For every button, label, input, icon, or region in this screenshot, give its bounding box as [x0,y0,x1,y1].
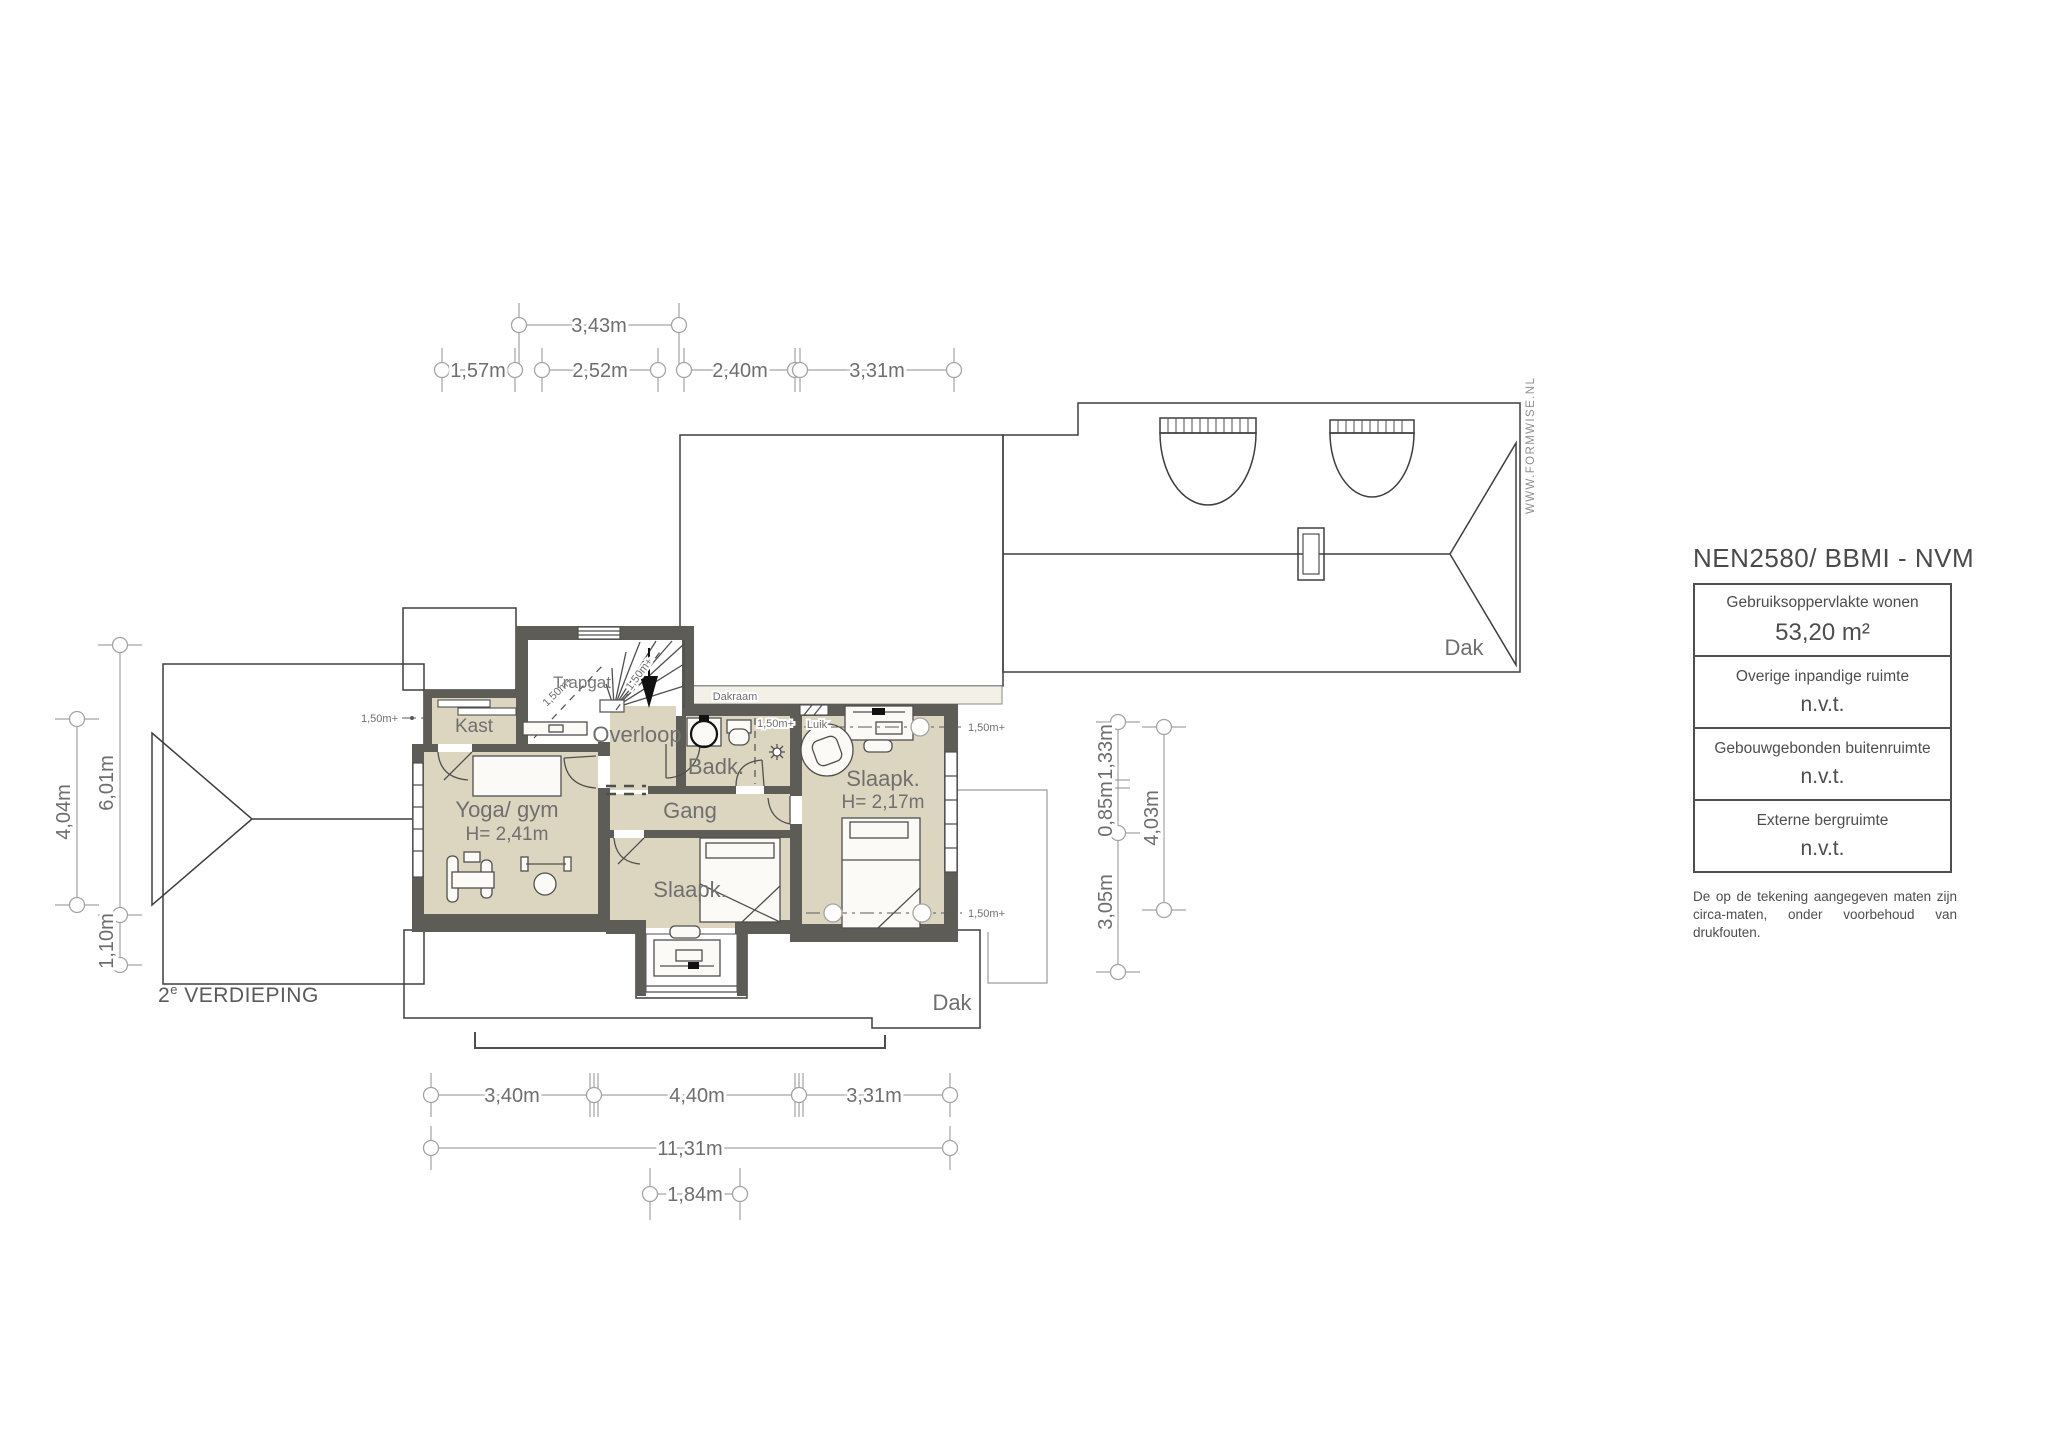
roof-top-center [680,435,1003,686]
dim-top-4: 3,31m [849,360,905,382]
height-marker-right-bottom: 1,50m+ [968,908,1005,920]
floor-title-sup: e [170,982,178,997]
info-row-gebruiksoppervlakte: Gebruiksoppervlakte wonen 53,20 m² [1695,585,1950,655]
dimensions-bottom: 3,40m 4,40m 3,31m 11,31m 1,84m [424,1073,958,1220]
trapgat-window [578,627,620,639]
yoga-mat [473,756,561,796]
dimensions-right: 1,33m 0,85m 3,05m 4,03m [1095,715,1186,980]
dim-bottom-total: 11,31m [657,1138,722,1160]
dim-right-outer: 4,03m [1141,790,1163,846]
height-marker-right-top: 1,50m+ [968,722,1005,734]
round-chair [801,724,853,776]
roof-label-dak-right: Dak [1444,635,1484,660]
info-table: Gebruiksoppervlakte wonen 53,20 m² Overi… [1693,583,1952,873]
info-row-value: 53,20 m² [1775,619,1870,647]
measurement-info-panel: NEN2580/ BBMI - NVM Gebruiksoppervlakte … [1693,543,1952,943]
dim-top-1: 1,57m [450,360,506,382]
yoga-window [413,763,423,877]
dim-right-inner-2: 0,85m [1095,781,1117,837]
label-kast: Kast [455,716,494,737]
floor-title-number: 2 [158,984,170,1007]
info-row-label: Gebouwgebonden buitenruimte [1714,740,1930,758]
dim-left-inner-1: 6,01m [96,755,118,811]
dim-top-2: 2,52m [572,360,628,382]
info-row-overige-inpandige: Overige inpandige ruimte n.v.t. [1695,655,1950,727]
dormer-outline-right [958,790,1047,983]
info-row-value: n.v.t. [1801,837,1845,861]
dim-top-upper: 3,43m [571,315,627,337]
panel-title: NEN2580/ BBMI - NVM [1693,543,1952,574]
info-row-label: Overige inpandige ruimte [1736,668,1909,686]
floor-title-name: VERDIEPING [178,984,319,1007]
label-slaapk-right: Slaapk. [846,766,919,791]
disclaimer-text: De op de tekening aangegeven maten zijn … [1693,888,1957,943]
dim-bottom-2: 4,40m [669,1085,725,1107]
info-row-value: n.v.t. [1801,693,1845,717]
dim-left-outer: 4,04m [53,784,75,840]
dim-right-inner-3: 3,05m [1095,874,1117,930]
bed-right [842,818,920,928]
height-marker-badk: 1,50m+ [757,718,794,730]
roof-edge-bracket [475,1032,885,1048]
dimensions-left: 4,04m 6,01m 1,10m [53,638,142,973]
dakraam-band: Dakraam [684,686,1002,704]
label-slaapk-right-height: H= 2,17m [842,792,925,813]
info-row-gebouwgebonden: Gebouwgebonden buitenruimte n.v.t. [1695,727,1950,799]
roof-top-right: Dak [1003,403,1520,672]
dim-left-inner-2: 1,10m [96,913,118,969]
label-yoga-height: H= 2,41m [466,824,549,845]
info-row-label: Externe bergruimte [1757,812,1889,830]
label-slaapk-left: Slaapk. [653,877,726,902]
label-gang: Gang [663,798,717,823]
light-point-icon [769,744,785,760]
dakraam-label: Dakraam [713,691,758,703]
slaapk-right-window [945,752,957,872]
info-row-value: n.v.t. [1801,765,1845,789]
label-yoga: Yoga/ gym [455,797,558,822]
roof-dormer-2 [1330,420,1414,497]
info-row-externe-bergruimte: Externe bergruimte n.v.t. [1695,799,1950,871]
label-badk: Badk. [688,754,744,779]
watermark: WWW.FORMWISE.NL [1525,377,1537,514]
label-luik: Luik [807,719,828,731]
label-overloop: Overloop [592,722,681,747]
dim-bottom-3: 3,31m [846,1085,902,1107]
roof-dormer-1 [1160,418,1256,505]
dim-top-3: 2,40m [712,360,768,382]
dim-bottom-nook: 1,84m [667,1184,723,1206]
roof-label-dak-bottom: Dak [932,990,972,1015]
toilet [727,720,751,745]
info-row-label: Gebruiksoppervlakte wonen [1726,594,1918,612]
height-marker-left: 1,50m+ [361,713,398,725]
floor-title: 2e VERDIEPING [158,982,319,1008]
luik-hatch [800,705,828,715]
label-trapgat: Trapgat [553,673,611,692]
dimensions-top: 3,43m 1,57m 2,52m 2,40m 3,31m [435,303,962,392]
dim-right-inner-1: 1,33m [1095,724,1117,780]
dim-bottom-1: 3,40m [484,1085,540,1107]
understairs-cabinet [523,722,587,735]
bathroom-sink [687,715,721,747]
